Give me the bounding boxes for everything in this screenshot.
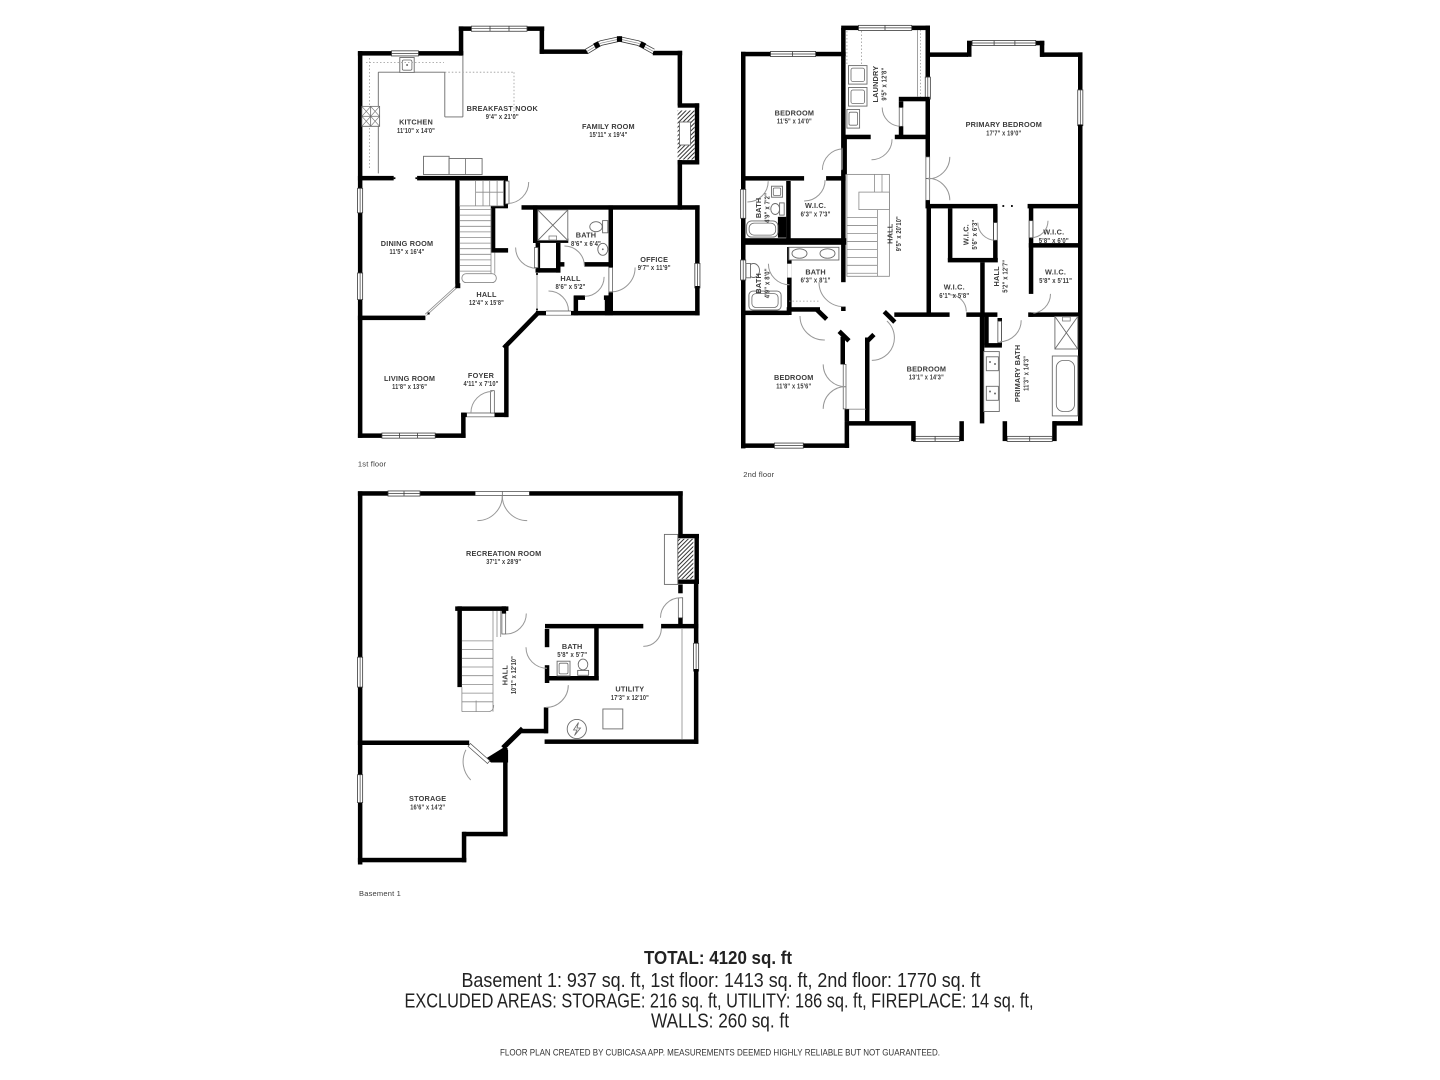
svg-text:16'6" x 14'2": 16'6" x 14'2" (410, 802, 445, 811)
svg-text:4'11" x 7'10": 4'11" x 7'10" (464, 379, 499, 388)
svg-text:5'8" x 5'7": 5'8" x 5'7" (557, 650, 587, 659)
svg-text:9'7" x 11'9": 9'7" x 11'9" (638, 263, 671, 272)
svg-text:6'3" x 7'3": 6'3" x 7'3" (801, 209, 831, 218)
svg-text:12'4" x 15'8": 12'4" x 15'8" (469, 298, 504, 307)
svg-text:6'3" x 8'1": 6'3" x 8'1" (801, 276, 831, 285)
svg-text:5'8" x 5'11": 5'8" x 5'11" (1039, 276, 1072, 285)
svg-text:10'1" x 12'10": 10'1" x 12'10" (509, 656, 518, 694)
svg-text:1st floor: 1st floor (358, 460, 387, 469)
svg-text:4'9" x 8'0": 4'9" x 8'0" (763, 268, 772, 298)
svg-text:17'3" x 12'10": 17'3" x 12'10" (611, 693, 649, 702)
svg-text:WALLS: 260 sq. ft: WALLS: 260 sq. ft (651, 1010, 789, 1033)
svg-text:FLOOR PLAN CREATED BY CUBICASA: FLOOR PLAN CREATED BY CUBICASA APP. MEAS… (500, 1048, 940, 1059)
svg-text:11'8" x 15'6": 11'8" x 15'6" (776, 381, 811, 390)
svg-text:37'1" x 28'9": 37'1" x 28'9" (486, 557, 521, 566)
svg-text:8'6" x 6'4": 8'6" x 6'4" (571, 239, 601, 248)
svg-text:5'2" x 12'7": 5'2" x 12'7" (1001, 260, 1010, 293)
svg-text:17'7" x 19'0": 17'7" x 19'0" (986, 128, 1021, 137)
svg-text:5'6" x 6'3": 5'6" x 6'3" (970, 220, 979, 250)
svg-text:8'6" x 5'2": 8'6" x 5'2" (556, 282, 586, 291)
svg-text:6'1" x 5'8": 6'1" x 5'8" (939, 291, 969, 300)
svg-text:4'9" x 7'2": 4'9" x 7'2" (763, 193, 772, 223)
svg-text:9'5" x 20'10": 9'5" x 20'10" (894, 216, 903, 251)
svg-text:2nd floor: 2nd floor (743, 470, 774, 479)
svg-text:11'3" x 14'3": 11'3" x 14'3" (1021, 356, 1030, 391)
svg-text:Basement 1: Basement 1 (359, 889, 401, 898)
svg-text:15'11" x 19'4": 15'11" x 19'4" (589, 130, 627, 139)
svg-text:5'8" x 6'0": 5'8" x 6'0" (1039, 236, 1069, 245)
svg-text:9'4" x 21'0": 9'4" x 21'0" (486, 112, 519, 121)
svg-text:TOTAL: 4120 sq. ft: TOTAL: 4120 sq. ft (644, 947, 792, 968)
svg-text:11'5" x 16'4": 11'5" x 16'4" (390, 247, 425, 256)
svg-text:11'10" x 14'0": 11'10" x 14'0" (397, 126, 435, 135)
svg-text:13'1" x 14'3": 13'1" x 14'3" (909, 373, 944, 382)
svg-text:9'5" x 12'8": 9'5" x 12'8" (879, 68, 888, 101)
svg-text:11'8" x 13'6": 11'8" x 13'6" (392, 382, 427, 391)
svg-text:11'5" x 14'0": 11'5" x 14'0" (777, 117, 812, 126)
